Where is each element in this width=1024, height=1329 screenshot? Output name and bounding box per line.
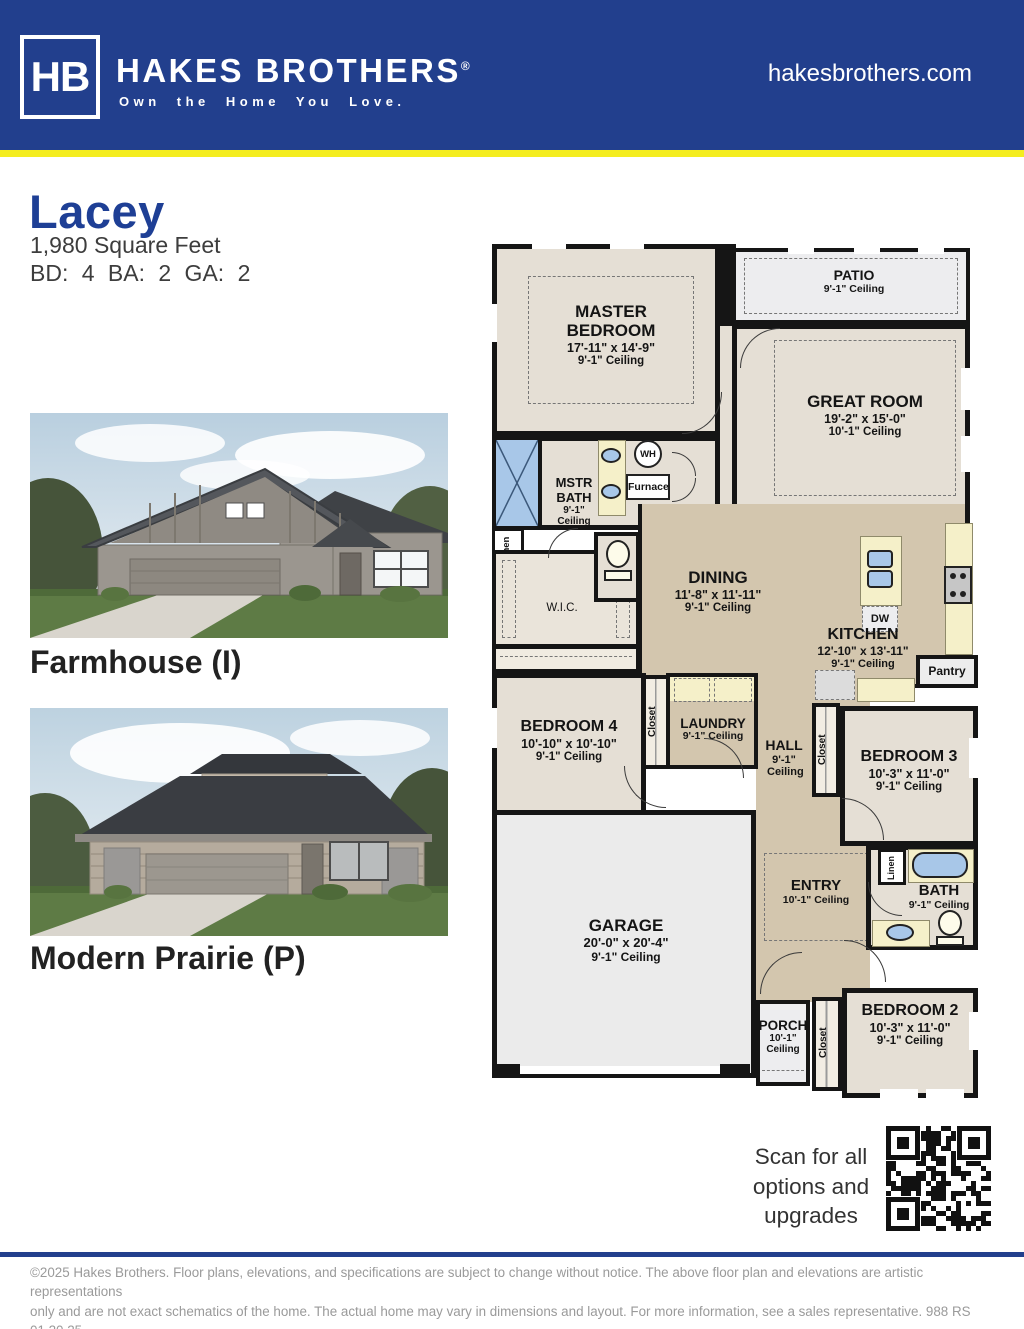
toilet-icon xyxy=(604,570,632,581)
qr-caption: Scan for all options and upgrades xyxy=(750,1142,872,1231)
window-marker xyxy=(854,247,880,254)
window-marker xyxy=(961,436,970,472)
window-marker xyxy=(610,240,644,249)
farmhouse-elevation-image xyxy=(30,413,448,638)
footer-line-1: ©2025 Hakes Brothers. Floor plans, eleva… xyxy=(30,1265,923,1299)
kitchen-sink-icon xyxy=(867,550,893,568)
yellow-accent-bar xyxy=(0,150,1024,157)
window-marker xyxy=(918,247,944,254)
master-bedroom-label: MASTER BEDROOM 17'-11" x 14'-9" 9'-1" Ce… xyxy=(528,302,694,368)
wall-post xyxy=(494,1064,520,1078)
linen-closet: Linen xyxy=(878,849,906,885)
flyer-page: HB HAKES BROTHERS® Own the Home You Love… xyxy=(0,0,1024,1329)
sink-icon xyxy=(601,448,621,463)
window-marker xyxy=(488,304,497,342)
bath-label: BATH 9'-1" Ceiling xyxy=(904,883,974,912)
window-marker xyxy=(532,240,566,249)
sink-icon xyxy=(601,484,621,499)
qr-finder xyxy=(957,1126,991,1160)
footer-line-2: only and are not exact schematics of the… xyxy=(30,1304,971,1329)
porch-label: PORCH 10'-1" Ceiling xyxy=(756,1018,810,1055)
pantry-label: Pantry xyxy=(920,664,974,678)
entry-label: ENTRY 10'-1" Ceiling xyxy=(774,878,858,907)
garage-label: GARAGE 20'-0" x 20'-4" 9'-1" Ceiling xyxy=(574,916,678,964)
kitchen-label: KITCHEN 12'-10" x 13'-11" 9'-1" Ceiling xyxy=(804,626,922,671)
kitchen-counter xyxy=(857,678,915,702)
qr-finder xyxy=(886,1126,920,1160)
wall-post xyxy=(720,1064,750,1078)
bedroom-4-label: BEDROOM 4 10'-10" x 10'-10" 9'-1" Ceilin… xyxy=(508,718,630,764)
hb-logo-text: HB xyxy=(31,53,90,101)
bedroom-3-label: BEDROOM 3 10'-3" x 11'-0" 9'-1" Ceiling xyxy=(848,748,970,794)
laundry-label: LAUNDRY 9'-1" Ceiling xyxy=(672,716,754,743)
window-marker xyxy=(961,368,970,410)
bathtub-icon xyxy=(912,852,968,878)
closet-shelf xyxy=(492,645,640,673)
registered-mark: ® xyxy=(461,59,470,73)
patio-label: PATIO 9'-1" Ceiling xyxy=(764,268,944,295)
modern-prairie-elevation-label: Modern Prairie (P) xyxy=(30,940,306,977)
shower-icon xyxy=(496,440,542,526)
window-marker xyxy=(926,1089,964,1098)
qr-finder xyxy=(886,1197,920,1231)
brand-tagline: Own the Home You Love. xyxy=(119,94,406,109)
window-marker xyxy=(880,1089,918,1098)
brand-name: HAKES BROTHERS® xyxy=(116,52,470,90)
hall-label: HALL 9'-1" Ceiling xyxy=(760,738,808,778)
plan-square-feet: 1,980 Square Feet xyxy=(30,232,221,259)
website-link[interactable]: hakesbrothers.com xyxy=(768,60,972,88)
mstr-bath-label: MSTR BATH 9'-1" Ceiling xyxy=(544,476,604,527)
refrigerator-icon xyxy=(815,670,855,700)
washer-icon xyxy=(674,678,710,702)
window-marker xyxy=(788,247,814,254)
hb-logo: HB xyxy=(20,35,100,119)
kitchen-sink-icon xyxy=(867,570,893,588)
door-arc xyxy=(548,528,578,558)
stove-icon xyxy=(944,566,972,604)
modern-prairie-elevation-image xyxy=(30,708,448,936)
dryer-icon xyxy=(714,678,752,702)
plan-title: Lacey xyxy=(29,184,165,239)
furnace-icon: Furnace xyxy=(626,474,670,500)
dining-label: DINING 11'-8" x 11'-11" 9'-1" Ceiling xyxy=(656,568,780,615)
water-heater-icon: WH xyxy=(634,440,662,468)
plan-specs: BD: 4 BA: 2 GA: 2 xyxy=(30,260,250,287)
sink-icon xyxy=(886,924,914,941)
header-bar: HB HAKES BROTHERS® Own the Home You Love… xyxy=(0,0,1024,150)
floor-plan: DW Pantry WH Furnace Linen W.I.C. xyxy=(488,240,988,1102)
wic-shelving xyxy=(502,560,516,638)
toilet-icon xyxy=(938,910,962,936)
bedroom-2-label: BEDROOM 2 10'-3" x 11'-0" 9'-1" Ceiling xyxy=(846,1002,974,1048)
qr-code[interactable] xyxy=(884,1124,993,1233)
room-pantry: Pantry xyxy=(916,655,978,688)
wic-label: W.I.C. xyxy=(532,602,592,615)
toilet-icon xyxy=(936,936,964,946)
garage-door-opening xyxy=(518,1066,722,1076)
window-marker xyxy=(488,708,497,748)
farmhouse-elevation-label: Farmhouse (I) xyxy=(30,644,242,681)
footer-divider xyxy=(0,1252,1024,1257)
great-room-label: GREAT ROOM 19'-2" x 15'-0" 10'-1" Ceilin… xyxy=(774,392,956,439)
toilet-icon xyxy=(606,540,630,568)
footer-disclaimer: ©2025 Hakes Brothers. Floor plans, eleva… xyxy=(30,1263,996,1329)
window-marker xyxy=(969,738,978,778)
porch-edge xyxy=(762,1070,804,1071)
